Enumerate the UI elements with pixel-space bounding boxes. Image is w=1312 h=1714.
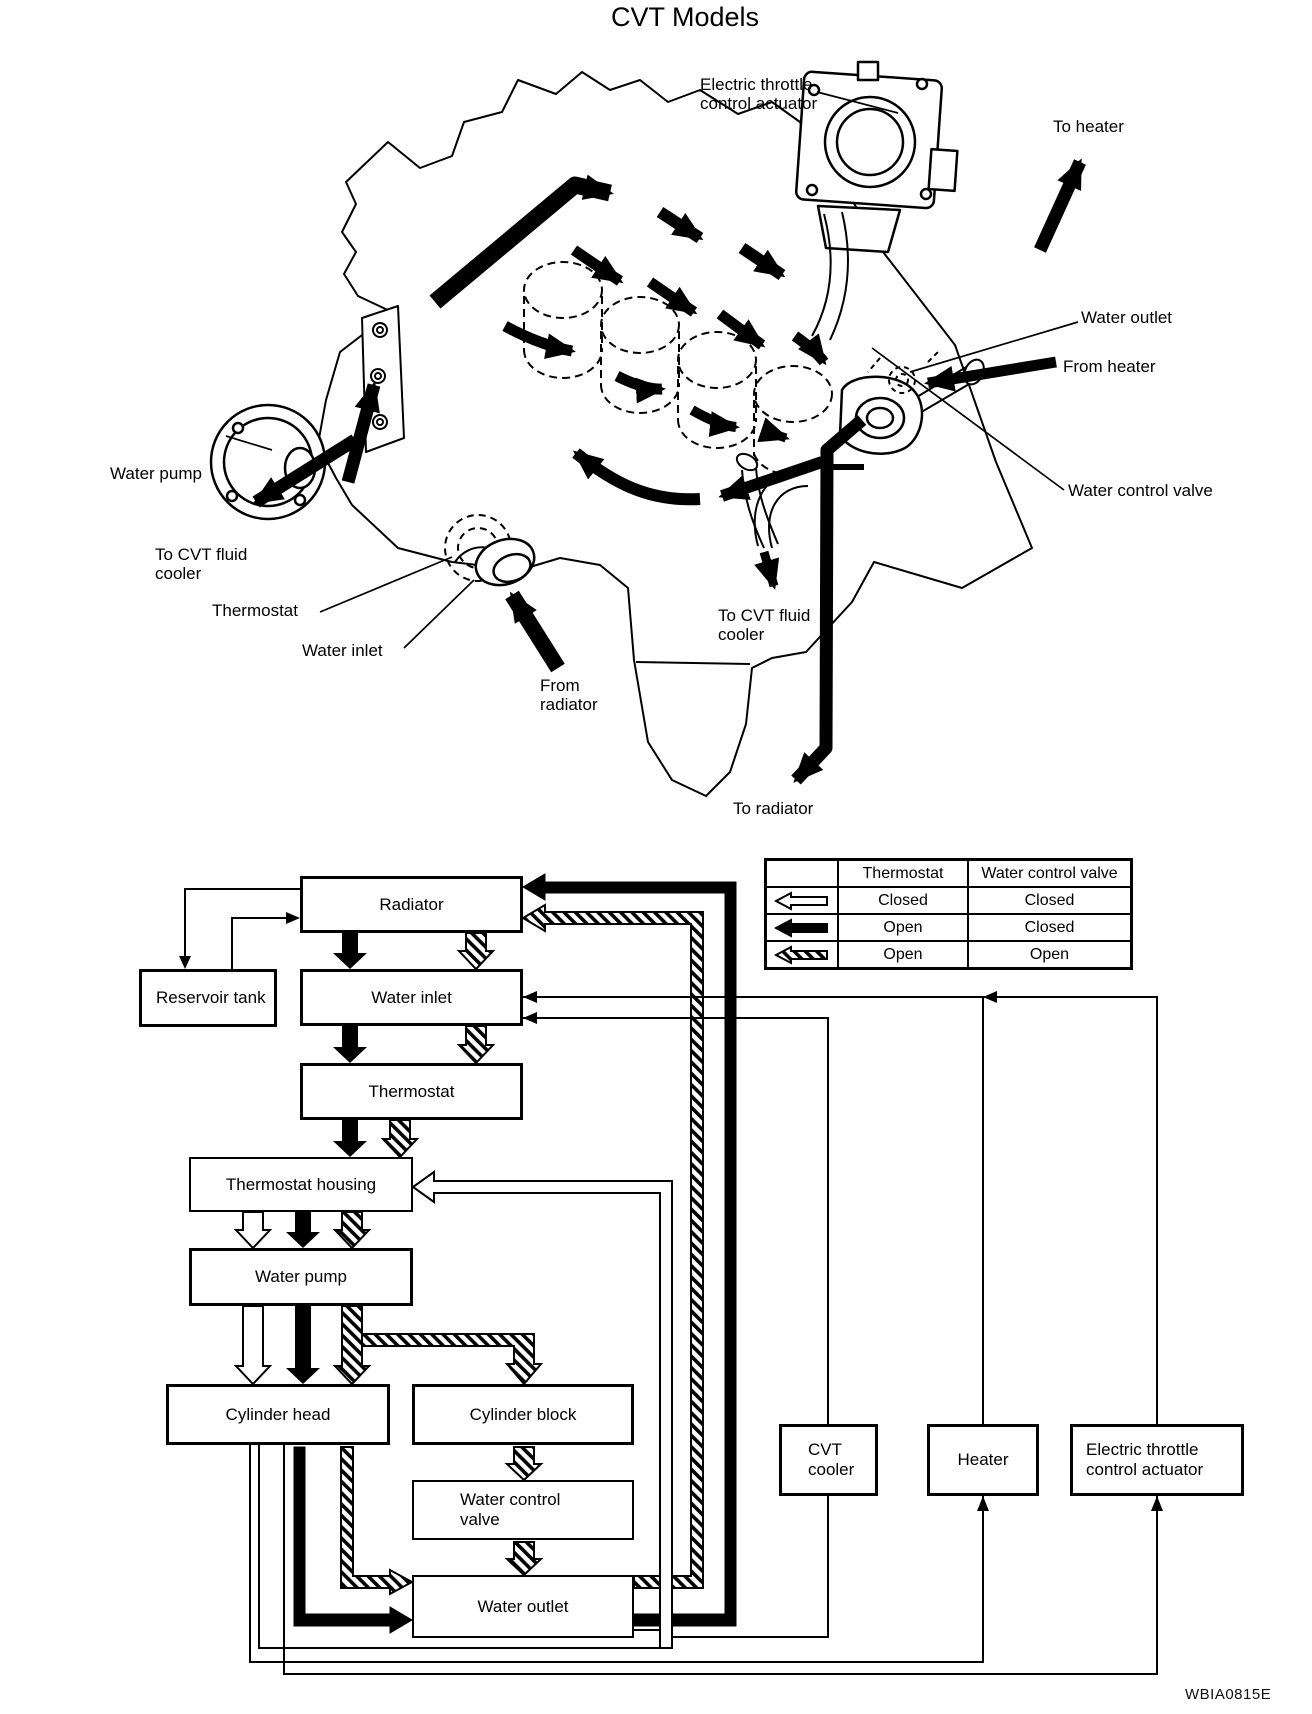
arrow-hatched-thermostat-housing	[383, 1120, 417, 1157]
legend-header-wcv: Water control valve	[968, 860, 1132, 888]
box-radiator: Radiator	[300, 876, 523, 933]
legend-solid-arrow-icon	[766, 914, 839, 941]
legend-hatched-wcv: Open	[968, 941, 1132, 969]
legend-header-thermostat: Thermostat	[838, 860, 968, 888]
box-water-control-valve: Water control valve	[412, 1480, 634, 1540]
box-reservoir-tank: Reservoir tank	[139, 969, 277, 1027]
label-water-outlet: Water outlet	[1081, 308, 1172, 327]
water-outlet-housing	[840, 377, 922, 454]
box-cylinder-head: Cylinder head	[166, 1384, 390, 1445]
label-to-heater: To heater	[1053, 117, 1124, 136]
arrow-solid-pump-head	[286, 1306, 320, 1384]
arrow-hatched-housing-pump	[335, 1212, 369, 1248]
legend-hatched-thermostat: Open	[838, 941, 968, 969]
arrow-hatched-head-outlet	[341, 1447, 412, 1594]
arrow-solid-thermostat-housing	[333, 1120, 367, 1157]
legend-solid-wcv: Closed	[968, 914, 1132, 941]
box-heater: Heater	[927, 1424, 1039, 1496]
arrow-open-pump-head	[236, 1306, 270, 1384]
legend-open-thermostat: Closed	[838, 887, 968, 914]
arrow-open-housing-pump	[236, 1212, 270, 1248]
legend-header-row: Thermostat Water control valve	[766, 860, 1132, 888]
legend-row-open: Closed Closed	[766, 887, 1132, 914]
label-from-radiator: From radiator	[540, 676, 620, 714]
box-water-pump: Water pump	[189, 1248, 413, 1306]
arrow-hatched-block-wcv	[507, 1447, 541, 1480]
legend-table: Thermostat Water control valve Closed Cl…	[764, 858, 1133, 970]
arrow-hatched-wcv-outlet	[507, 1542, 541, 1575]
box-cylinder-block: Cylinder block	[412, 1384, 634, 1445]
legend-row-hatched: Open Open	[766, 941, 1132, 969]
legend-header-arrow	[766, 860, 839, 888]
label-to-cvt-fluid-cooler-left: To CVT fluid cooler	[155, 545, 250, 583]
box-cvt-cooler: CVT cooler	[779, 1424, 878, 1496]
page-title: CVT Models	[600, 2, 770, 32]
arrow-solid-housing-pump	[286, 1212, 320, 1248]
page: CVT Models Electric throttle control act…	[0, 0, 1312, 1714]
label-water-control-valve: Water control valve	[1068, 481, 1213, 500]
legend-hatched-arrow-icon	[766, 941, 839, 969]
box-water-inlet: Water inlet	[300, 969, 523, 1026]
arrow-hatched-pump-block	[362, 1334, 541, 1384]
arrow-solid-radiator-inlet	[333, 933, 367, 969]
legend-open-wcv: Closed	[968, 887, 1132, 914]
figure-code: WBIA0815E	[1185, 1686, 1271, 1703]
box-thermostat-housing: Thermostat housing	[189, 1157, 413, 1212]
label-from-heater: From heater	[1063, 357, 1156, 376]
label-water-pump: Water pump	[110, 464, 202, 483]
arrow-hatched-inlet-thermostat	[459, 1026, 493, 1063]
legend-solid-thermostat: Open	[838, 914, 968, 941]
legend-open-arrow-icon	[766, 887, 839, 914]
label-water-inlet: Water inlet	[302, 641, 383, 660]
label-thermostat: Thermostat	[212, 601, 298, 620]
label-to-cvt-fluid-cooler-center: To CVT fluid cooler	[718, 606, 813, 644]
engine-illustration	[211, 62, 1080, 796]
arrow-solid-inlet-thermostat	[333, 1026, 367, 1063]
box-thermostat: Thermostat	[300, 1063, 523, 1120]
box-electric-throttle-control-actuator: Electric throttle control actuator	[1070, 1424, 1244, 1496]
label-to-radiator: To radiator	[733, 799, 813, 818]
legend-row-solid: Open Closed	[766, 914, 1132, 941]
label-electric-throttle-control-actuator: Electric throttle control actuator	[700, 75, 840, 113]
arrow-hatched-radiator-inlet	[459, 933, 493, 969]
box-water-outlet: Water outlet	[412, 1575, 634, 1638]
